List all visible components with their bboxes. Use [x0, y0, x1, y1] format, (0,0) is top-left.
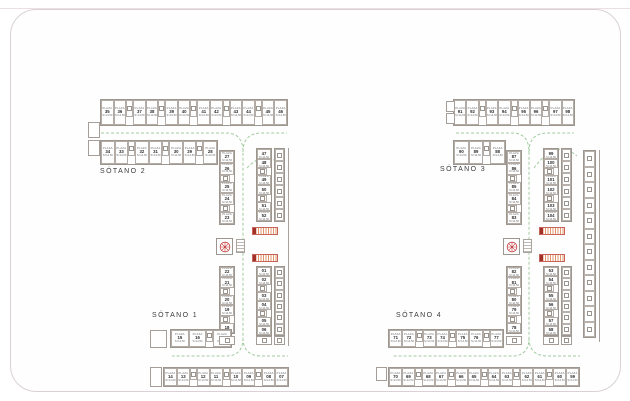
storage-door-mark [159, 106, 164, 111]
storage-cell [275, 324, 284, 335]
storage-cell [275, 197, 284, 209]
parking-stall-100: PLAZA100S=14,50 [544, 159, 558, 169]
parking-stall-56: PLAZA56S=14,50 [544, 301, 558, 310]
storage-door-mark [564, 304, 569, 309]
stall-area: S=14,50 [259, 219, 269, 221]
trastero-column [274, 266, 285, 336]
parking-stall-70: PLAZA70S=14,50 [389, 368, 402, 386]
parking-stall-87: PLAZA87S=14,50 [507, 151, 521, 163]
storage-door-mark [129, 146, 134, 151]
parking-stall-96: PLAZA96S=14,50 [530, 100, 542, 125]
parking-stall-78: PLAZA78S=14,50 [507, 323, 521, 333]
parking-stall-49: PLAZA49S=14,50 [257, 175, 271, 185]
parking-stall-63: PLAZA63S=14,50 [500, 368, 513, 386]
stall-area: S=14,50 [437, 341, 447, 344]
storage-cell [275, 173, 284, 185]
s3-second-row: PLAZA90S=14,50PLAZA89S=14,50PLAZA88S=14,… [453, 140, 506, 165]
parking-stall-51: PLAZA51S=14,50 [257, 202, 271, 212]
ramp-hatch [252, 227, 278, 235]
stall-area: S=14,50 [522, 380, 532, 383]
parking-stall-25: PLAZA25S=14,50 [220, 182, 234, 194]
s1-bottom-row: PLAZA14S=14,50PLAZA13S=14,50PLAZA12S=14,… [163, 367, 289, 387]
storage-cell [126, 100, 133, 117]
trastero-column [274, 148, 285, 222]
storage-door-mark [224, 106, 229, 111]
s3-col-inner: PLAZA87S=14,50PLAZA86S=14,50PLAZA85S=14,… [506, 150, 522, 225]
storage-cell [275, 290, 284, 301]
storage-cell [275, 209, 284, 221]
stall-area: S=14,50 [456, 380, 466, 383]
stall-area: S=14,50 [179, 115, 189, 118]
storage-door-mark [564, 201, 569, 206]
parking-stall-60: PLAZA60S=14,50 [553, 368, 566, 386]
parking-stall-92: PLAZA92S=14,50 [466, 100, 478, 125]
storage-door-mark [587, 203, 592, 208]
parking-stall-52: PLAZA52S=14,50 [257, 211, 271, 221]
storage-cell [220, 288, 230, 295]
storage-door-mark [225, 338, 230, 343]
stall-area: S=14,50 [404, 341, 414, 344]
storage-cell [255, 368, 262, 380]
outer-wall [599, 150, 600, 342]
storage-cell [257, 168, 267, 175]
stall-area: S=14,50 [137, 155, 147, 158]
parking-stall-15: PLAZA15S=14,50 [171, 330, 189, 347]
parking-stall-45: PLAZA45S=14,50 [262, 100, 275, 125]
vent-room-left [216, 238, 233, 255]
storage-cell [584, 306, 595, 322]
storage-door-mark [587, 234, 592, 239]
stall-area: S=14,50 [244, 380, 254, 383]
storage-cell [257, 310, 267, 317]
parking-stall-29: PLAZA29S=14,50 [183, 141, 197, 164]
storage-cell [546, 368, 553, 380]
parking-stall-88: PLAZA88S=14,50 [490, 141, 505, 164]
storage-cell [275, 312, 284, 323]
parking-stall-68: PLAZA68S=14,50 [422, 368, 435, 386]
stall-area: S=14,50 [493, 155, 503, 158]
storage-cell [562, 290, 571, 301]
storage-door-mark [277, 315, 282, 320]
storage-cell [223, 368, 230, 380]
storage-door-mark [223, 289, 228, 294]
parking-stall-01: PLAZA01S=14,50 [257, 267, 271, 276]
storage-cell [562, 161, 571, 173]
storage-door-mark [277, 304, 282, 309]
parking-stall-103: PLAZA103S=14,50 [544, 202, 558, 212]
storage-door-mark [547, 311, 552, 316]
storage-door-mark [510, 317, 515, 322]
trastero-column [561, 148, 572, 222]
stall-area: S=14,50 [103, 155, 113, 158]
service-room [88, 122, 100, 138]
storage-cell [544, 168, 554, 175]
storage-door-mark [587, 187, 592, 192]
s4-bottom-row: PLAZA70S=14,50PLAZA69S=14,50PLAZA68S=14,… [388, 367, 580, 387]
storage-cell [584, 291, 595, 307]
parking-stall-67: PLAZA67S=14,50 [435, 368, 448, 386]
parking-stall-55: PLAZA55S=14,50 [544, 292, 558, 301]
parking-stall-90: PLAZA90S=14,50 [454, 141, 469, 164]
parking-stall-54: PLAZA54S=14,50 [544, 276, 558, 285]
parking-stall-12: PLAZA12S=14,50 [197, 368, 210, 386]
stall-area: S=14,50 [175, 341, 185, 344]
stall-area: S=14,50 [487, 115, 497, 118]
parking-stall-48: PLAZA48S=14,50 [257, 159, 271, 169]
storage-cell [584, 260, 595, 276]
parking-stall-59: PLAZA59S=14,50 [566, 368, 579, 386]
parking-stall-21: PLAZA21S=14,50 [220, 277, 234, 287]
parking-stall-02: PLAZA02S=14,50 [257, 276, 271, 285]
storage-door-mark [564, 270, 569, 275]
stall-area: S=14,50 [423, 380, 433, 383]
s4-col-right: PLAZA53S=14,50PLAZA54S=14,50PLAZA55S=14,… [543, 266, 559, 336]
storage-door-mark [207, 333, 212, 338]
parking-stall-33: PLAZA33S=14,50 [115, 141, 129, 164]
storage-cell [158, 100, 165, 117]
storage-cell [255, 100, 262, 117]
stall-area: S=14,50 [499, 115, 509, 118]
parking-stall-14: PLAZA14S=14,50 [164, 368, 177, 386]
parking-stall-66: PLAZA66S=14,50 [455, 368, 468, 386]
storage-cell [562, 149, 571, 161]
shaft-foot-cell [506, 336, 522, 345]
parking-stall-85: PLAZA85S=14,50 [507, 182, 521, 194]
storage-door-mark [223, 317, 228, 322]
parking-stall-31: PLAZA31S=14,50 [149, 141, 163, 164]
storage-door-mark [277, 270, 282, 275]
stall-area: S=14,50 [264, 380, 274, 383]
storage-door-mark [587, 172, 592, 177]
storage-cell [562, 209, 571, 221]
stall-area: S=14,50 [116, 155, 126, 158]
label-sotano-4: SÓTANO 4 [396, 312, 442, 319]
parking-stall-65: PLAZA65S=14,50 [468, 368, 481, 386]
stall-area: S=14,50 [469, 380, 479, 383]
storage-cell [584, 244, 595, 260]
parking-stall-74: PLAZA74S=14,50 [436, 330, 449, 347]
storage-door-mark [277, 201, 282, 206]
storage-door-mark [564, 327, 569, 332]
storage-door-mark [587, 156, 592, 161]
storage-cell [584, 167, 595, 183]
parking-stall-79: PLAZA79S=14,50 [507, 305, 521, 315]
storage-cell [562, 267, 571, 278]
storage-cell [584, 182, 595, 198]
storage-cell [190, 100, 197, 117]
storage-door-mark [547, 169, 552, 174]
stairs-right [523, 239, 532, 253]
parking-stall-16: PLAZA16S=14,50 [189, 330, 207, 347]
stall-area: S=14,50 [198, 380, 208, 383]
parking-stall-23: PLAZA23S=14,50 [220, 212, 234, 224]
storage-cell [449, 330, 456, 342]
storage-door-mark [223, 176, 228, 181]
stall-area: S=14,50 [171, 155, 181, 158]
parking-stall-75: PLAZA75S=14,50 [456, 330, 469, 347]
stall-area: S=14,50 [424, 341, 434, 344]
stall-area: S=14,50 [211, 115, 221, 118]
storage-door-mark [514, 372, 519, 377]
storage-door-mark [564, 338, 569, 343]
parking-stall-06: PLAZA06S=14,50 [257, 326, 271, 335]
storage-door-mark [277, 327, 282, 332]
storage-cell [562, 173, 571, 185]
parking-stall-03: PLAZA03S=14,50 [257, 292, 271, 301]
stall-area: S=14,50 [115, 115, 125, 118]
parking-stall-47: PLAZA47S=14,50 [257, 149, 271, 159]
trastero-column [561, 266, 572, 336]
parking-stall-97: PLAZA97S=14,50 [549, 100, 561, 125]
parking-stall-04: PLAZA04S=14,50 [257, 301, 271, 310]
parking-stall-22: PLAZA22S=14,50 [220, 267, 234, 277]
stall-area: S=14,50 [277, 380, 287, 383]
storage-door-mark [512, 106, 517, 111]
storage-cell [479, 100, 486, 117]
storage-cell [483, 330, 490, 342]
storage-door-mark [197, 146, 202, 151]
stall-area: S=14,50 [489, 380, 499, 383]
trastero-column [583, 150, 596, 338]
s1-col-inner: PLAZA22S=14,50PLAZA21S=14,50PLAZA20S=14,… [219, 266, 235, 334]
storage-door-mark [510, 176, 515, 181]
storage-cell [416, 330, 423, 342]
parking-stall-20: PLAZA20S=14,50 [220, 295, 234, 305]
parking-stall-09: PLAZA09S=14,50 [242, 368, 255, 386]
parking-stall-07: PLAZA07S=14,50 [275, 368, 288, 386]
storage-door-mark [564, 153, 569, 158]
stall-area: S=14,50 [178, 380, 188, 383]
storage-door-mark [449, 372, 454, 377]
storage-cell [220, 316, 230, 323]
parking-stall-76: PLAZA76S=14,50 [469, 330, 482, 347]
storage-door-mark [510, 206, 515, 211]
storage-cell [584, 198, 595, 214]
storage-door-mark [484, 146, 489, 151]
storage-door-mark [127, 106, 132, 111]
storage-door-mark [277, 153, 282, 158]
storage-door-mark [416, 372, 421, 377]
storage-door-mark [564, 281, 569, 286]
parking-stall-37: PLAZA37S=14,50 [133, 100, 146, 125]
stall-area: S=14,50 [231, 115, 241, 118]
parking-stall-91: PLAZA91S=14,50 [454, 100, 466, 125]
storage-door-mark [484, 333, 489, 338]
parking-stall-81: PLAZA81S=14,50 [507, 277, 521, 287]
stall-area: S=14,50 [263, 115, 273, 118]
parking-stall-05: PLAZA05S=14,50 [257, 317, 271, 326]
parking-stall-28: PLAZA28S=14,50 [203, 141, 217, 164]
stall-area: S=14,50 [502, 380, 512, 383]
parking-stall-101: PLAZA101S=14,50 [544, 175, 558, 185]
stall-area: S=14,50 [391, 341, 401, 344]
storage-cell [190, 368, 197, 380]
storage-cell [562, 278, 571, 289]
service-room [446, 113, 455, 124]
storage-cell [544, 310, 554, 317]
storage-cell [507, 175, 517, 182]
storage-door-mark [277, 338, 282, 343]
s2-col-inner: PLAZA27S=14,50PLAZA26S=14,50PLAZA25S=14,… [219, 150, 235, 225]
parking-stall-57: PLAZA57S=14,50 [544, 317, 558, 326]
storage-cell [415, 368, 422, 380]
parking-stall-83: PLAZA83S=14,50 [507, 212, 521, 224]
shaft-foot-cell [274, 336, 285, 345]
parking-stall-61: PLAZA61S=14,50 [533, 368, 546, 386]
stall-area: S=14,50 [568, 380, 578, 383]
storage-cell [223, 100, 230, 117]
storage-door-mark [564, 165, 569, 170]
parking-stall-89: PLAZA89S=14,50 [469, 141, 484, 164]
storage-door-mark [260, 311, 265, 316]
service-room [376, 367, 387, 381]
storage-cell [562, 324, 571, 335]
parking-stall-94: PLAZA94S=14,50 [498, 100, 510, 125]
stall-area: S=14,50 [531, 115, 541, 118]
storage-door-mark [260, 286, 265, 291]
parking-stall-10: PLAZA10S=14,50 [230, 368, 243, 386]
storage-door-mark [547, 372, 552, 377]
storage-door-mark [512, 338, 517, 343]
storage-cell [275, 185, 284, 197]
parking-stall-86: PLAZA86S=14,50 [507, 163, 521, 175]
parking-stall-99: PLAZA99S=14,50 [544, 149, 558, 159]
storage-cell [257, 195, 267, 202]
storage-cell [128, 141, 135, 156]
stall-area: S=14,50 [436, 380, 446, 383]
storage-cell [584, 229, 595, 245]
storage-cell [275, 278, 284, 289]
storage-door-mark [224, 372, 229, 377]
parking-stall-39: PLAZA39S=14,50 [165, 100, 178, 125]
parking-stall-13: PLAZA13S=14,50 [177, 368, 190, 386]
parking-stall-35: PLAZA35S=14,50 [101, 100, 114, 125]
storage-cell [562, 301, 571, 312]
storage-cell [544, 285, 554, 292]
storage-door-mark [191, 106, 196, 111]
stall-area: S=14,50 [390, 380, 400, 383]
ventilation-fan-icon [505, 240, 519, 254]
storage-door-mark [260, 196, 265, 201]
stall-area: S=14,50 [147, 115, 157, 118]
parking-stall-58: PLAZA58S=14,50 [544, 326, 558, 335]
storage-door-mark [450, 333, 455, 338]
stall-area: S=14,50 [192, 341, 202, 344]
ramp-hatch [539, 254, 565, 262]
parking-stall-53: PLAZA53S=14,50 [544, 267, 558, 276]
storage-door-mark [277, 177, 282, 182]
stall-area: S=14,50 [185, 155, 195, 158]
parking-stall-24: PLAZA24S=14,50 [220, 193, 234, 205]
stall-area: S=14,50 [519, 115, 529, 118]
sheet-border [10, 9, 621, 392]
storage-door-mark [587, 280, 592, 285]
storage-cell [511, 100, 518, 117]
service-room [150, 367, 162, 387]
parking-stall-64: PLAZA64S=14,50 [488, 368, 501, 386]
storage-cell [562, 312, 571, 323]
storage-door-mark [256, 372, 261, 377]
storage-cell [448, 368, 455, 380]
stall-area: S=14,50 [150, 155, 160, 158]
stall-area: S=14,50 [205, 155, 215, 158]
s3-col-right: PLAZA99S=14,50PLAZA100S=14,50PLAZA101S=1… [543, 148, 559, 222]
storage-cell [507, 316, 517, 323]
storage-cell [544, 195, 554, 202]
parking-stall-44: PLAZA44S=14,50 [242, 100, 255, 125]
storage-door-mark [564, 315, 569, 320]
stall-area: S=14,50 [222, 221, 232, 224]
storage-cell [507, 205, 517, 212]
parking-stall-32: PLAZA32S=14,50 [135, 141, 149, 164]
label-sotano-1: SÓTANO 1 [152, 312, 198, 319]
stall-area: S=14,50 [550, 115, 560, 118]
storage-cell [483, 141, 490, 156]
storage-cell [513, 368, 520, 380]
parking-stall-30: PLAZA30S=14,50 [169, 141, 183, 164]
storage-door-mark [277, 213, 282, 218]
stall-area: S=14,50 [546, 333, 556, 335]
stall-area: S=14,50 [509, 221, 519, 224]
stall-area: S=14,50 [456, 155, 466, 158]
parking-stall-73: PLAZA73S=14,50 [423, 330, 436, 347]
shaft-foot-cell [256, 336, 272, 345]
storage-cell [562, 185, 571, 197]
vent-room-right [503, 238, 520, 255]
label-sotano-2: SÓTANO 2 [100, 168, 146, 175]
parking-stall-08: PLAZA08S=14,50 [262, 368, 275, 386]
shaft-foot-cell [219, 336, 235, 345]
storage-door-mark [547, 196, 552, 201]
storage-door-mark [564, 293, 569, 298]
storage-door-mark [587, 265, 592, 270]
parking-stall-40: PLAZA40S=14,50 [178, 100, 191, 125]
s2-second-row: PLAZA34S=14,50PLAZA33S=14,50PLAZA32S=14,… [100, 140, 218, 165]
stall-area: S=14,50 [471, 155, 481, 158]
shaft-foot-cell [561, 336, 572, 345]
storage-cell [220, 175, 230, 182]
storage-door-mark [587, 311, 592, 316]
storage-door-mark [587, 218, 592, 223]
stall-area: S=14,50 [211, 380, 221, 383]
storage-cell [162, 141, 169, 156]
storage-door-mark [223, 206, 228, 211]
storage-door-mark [277, 281, 282, 286]
storage-door-mark [587, 249, 592, 254]
parking-stall-84: PLAZA84S=14,50 [507, 193, 521, 205]
storage-cell [275, 267, 284, 278]
stall-area: S=14,50 [134, 115, 144, 118]
storage-cell [257, 285, 267, 292]
parking-stall-102: PLAZA102S=14,50 [544, 185, 558, 195]
parking-stall-46: PLAZA46S=14,50 [274, 100, 287, 125]
storage-door-mark [547, 286, 552, 291]
storage-door-mark [191, 372, 196, 377]
parking-stall-34: PLAZA34S=14,50 [101, 141, 115, 164]
storage-cell [584, 151, 595, 167]
service-room [88, 140, 100, 156]
stall-area: S=14,50 [403, 380, 413, 383]
storage-door-mark [482, 372, 487, 377]
storage-cell [584, 322, 595, 338]
stall-area: S=14,50 [276, 115, 286, 118]
parking-stall-19: PLAZA19S=14,50 [220, 305, 234, 315]
storage-cell [220, 205, 230, 212]
ventilation-fan-icon [218, 240, 232, 254]
stall-area: S=14,50 [471, 341, 481, 344]
outer-wall [288, 148, 289, 346]
parking-stall-43: PLAZA43S=14,50 [230, 100, 243, 125]
